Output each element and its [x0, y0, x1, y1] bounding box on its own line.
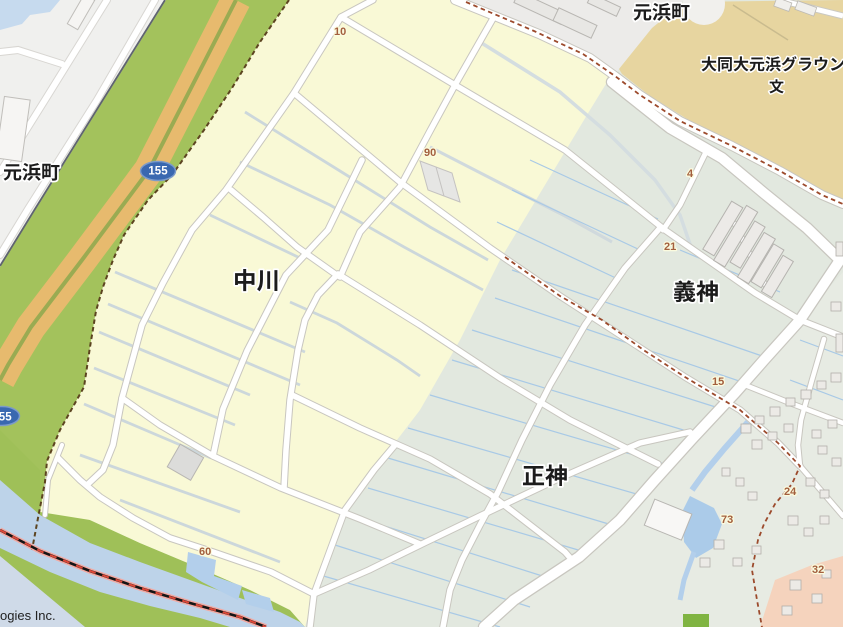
svg-text:32: 32 [812, 564, 824, 576]
svg-text:4: 4 [687, 168, 694, 180]
svg-text:10: 10 [334, 26, 346, 38]
svg-text:24: 24 [784, 486, 797, 498]
svg-text:21: 21 [664, 241, 676, 253]
svg-text:155: 155 [148, 166, 168, 178]
svg-text:73: 73 [721, 514, 733, 526]
svg-text:155: 155 [0, 412, 12, 424]
svg-text:90: 90 [424, 147, 436, 159]
svg-text:60: 60 [199, 546, 211, 558]
svg-text:15: 15 [712, 376, 724, 388]
svg-text:ogies Inc.: ogies Inc. [0, 608, 56, 623]
